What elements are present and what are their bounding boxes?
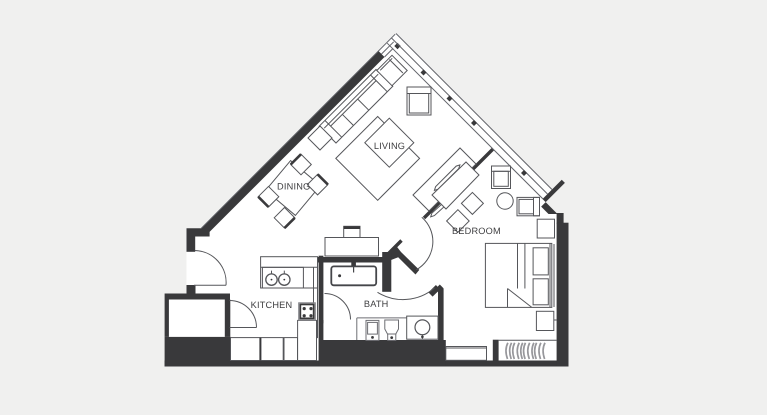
svg-text:DINING: DINING [277, 181, 310, 191]
svg-text:LIVING: LIVING [374, 141, 405, 151]
svg-text:BEDROOM: BEDROOM [452, 226, 501, 236]
svg-text:BATH: BATH [364, 299, 389, 309]
svg-text:KITCHEN: KITCHEN [251, 300, 293, 310]
